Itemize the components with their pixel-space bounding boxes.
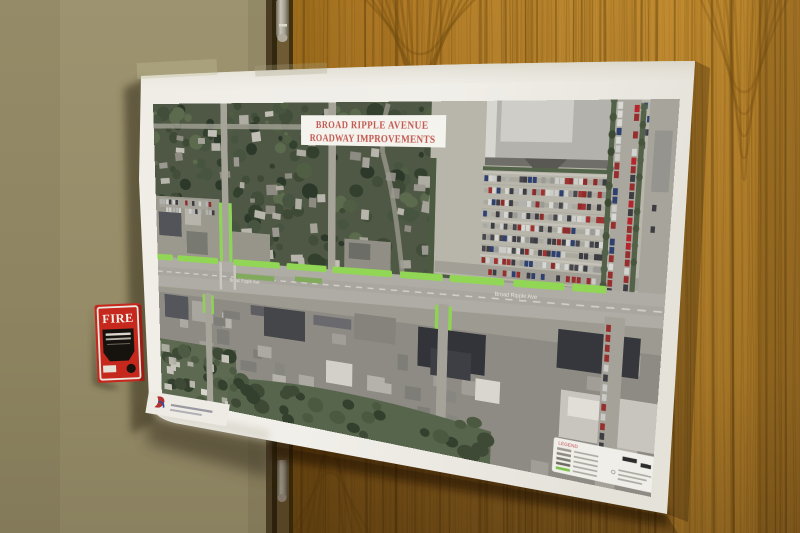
svg-text:BROAD RIPPLE AVENUE: BROAD RIPPLE AVENUE [316,119,429,132]
svg-text:FIRE: FIRE [102,311,134,326]
svg-text:ROADWAY IMPROVEMENTS: ROADWAY IMPROVEMENTS [310,132,436,146]
